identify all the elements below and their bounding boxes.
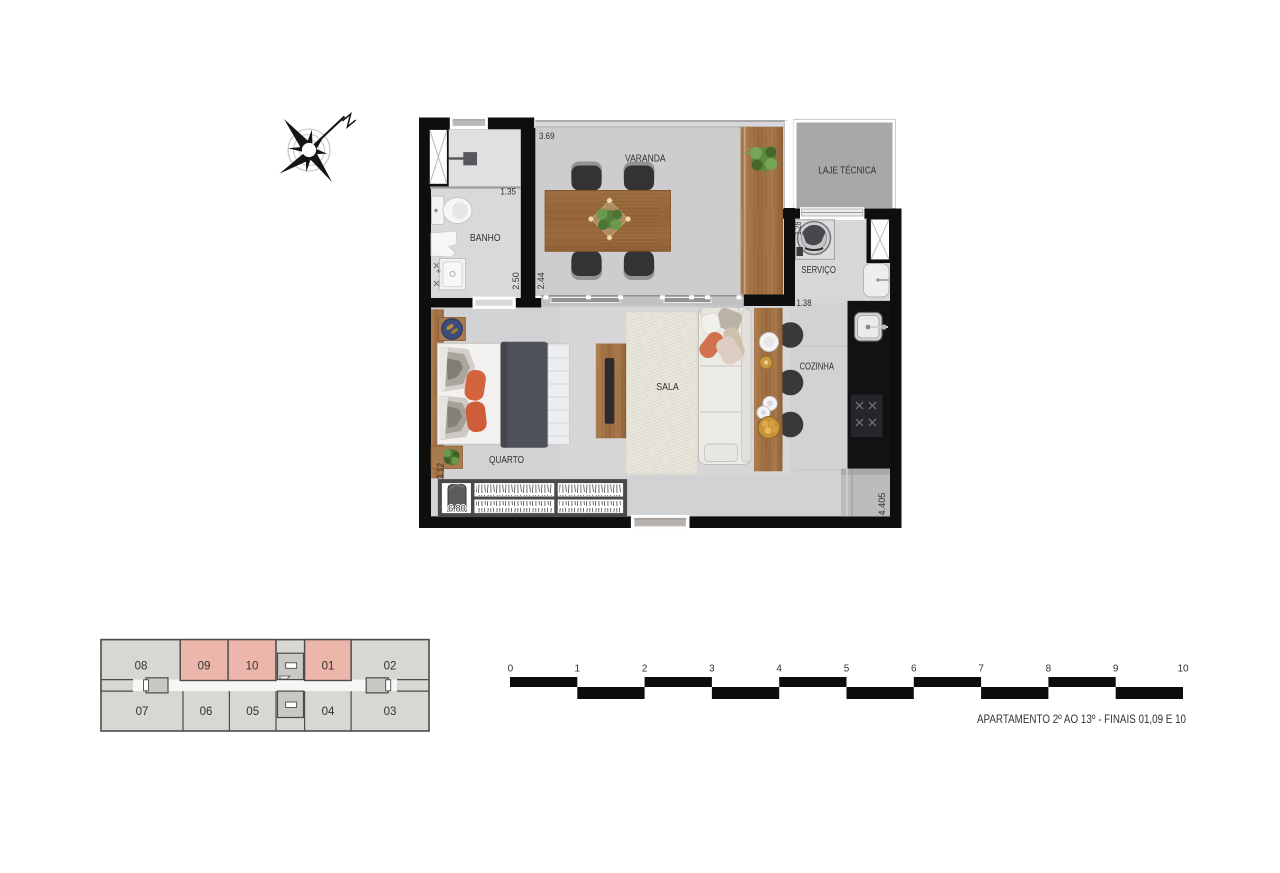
svg-text:SALA: SALA	[656, 382, 679, 393]
svg-text:9: 9	[1113, 664, 1119, 675]
svg-text:1.28: 1.28	[793, 222, 803, 235]
svg-text:09: 09	[198, 661, 211, 673]
svg-text:3: 3	[709, 664, 715, 675]
svg-text:10: 10	[1177, 664, 1189, 675]
svg-text:10: 10	[246, 661, 259, 673]
svg-text:08: 08	[135, 661, 148, 673]
svg-text:06: 06	[200, 706, 213, 718]
svg-text:02: 02	[384, 661, 397, 673]
svg-text:04: 04	[322, 706, 335, 718]
svg-text:VARANDA: VARANDA	[625, 154, 666, 165]
svg-text:6.80: 6.80	[448, 504, 466, 515]
svg-text:01: 01	[322, 661, 335, 673]
svg-text:4.405: 4.405	[877, 493, 887, 516]
svg-text:SERVIÇO: SERVIÇO	[801, 265, 836, 276]
svg-text:1: 1	[575, 664, 581, 675]
svg-text:5: 5	[844, 664, 850, 675]
svg-text:3.12: 3.12	[435, 463, 445, 480]
svg-text:4: 4	[776, 664, 782, 675]
svg-text:2: 2	[642, 664, 648, 675]
svg-text:COZINHA: COZINHA	[799, 361, 834, 372]
svg-text:LAJE TÉCNICA: LAJE TÉCNICA	[818, 163, 876, 176]
svg-text:APARTAMENTO 2º AO 13º - FINAIS: APARTAMENTO 2º AO 13º - FINAIS 01,09 E 1…	[977, 712, 1186, 726]
svg-text:05: 05	[246, 706, 259, 718]
svg-text:7: 7	[978, 664, 984, 675]
svg-text:6: 6	[911, 664, 917, 675]
svg-text:8: 8	[1046, 664, 1052, 675]
svg-text:2.50: 2.50	[511, 272, 522, 290]
svg-text:0: 0	[508, 664, 514, 675]
svg-text:1.35: 1.35	[500, 187, 516, 197]
svg-text:3.69: 3.69	[539, 131, 555, 141]
svg-text:03: 03	[384, 706, 397, 718]
svg-text:2.44: 2.44	[536, 272, 547, 289]
svg-text:BANHO: BANHO	[470, 233, 501, 244]
svg-text:QUARTO: QUARTO	[489, 455, 524, 466]
svg-text:1.38: 1.38	[797, 298, 812, 308]
svg-text:07: 07	[136, 706, 149, 718]
